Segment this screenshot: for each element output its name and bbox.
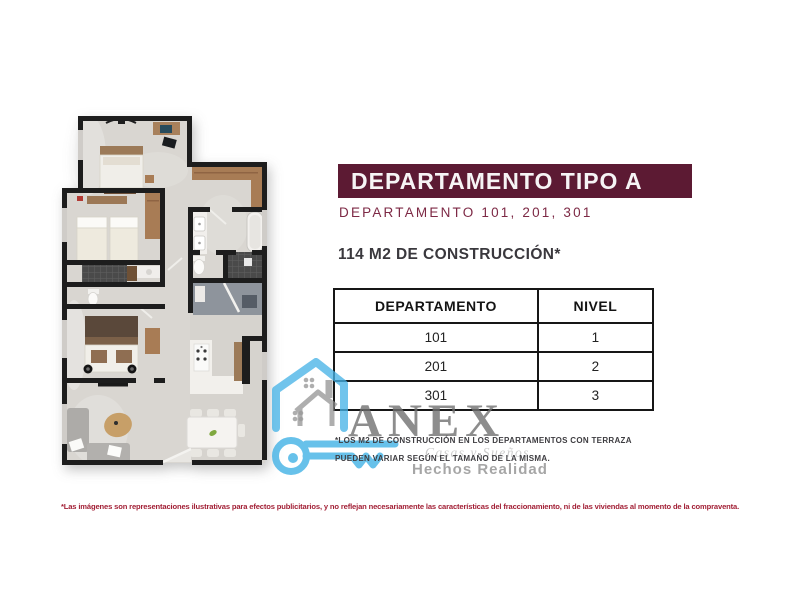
page-title: DEPARTAMENTO TIPO A [351,168,643,194]
cell-departamento: 301 [334,381,538,410]
table-row: 201 2 [334,352,653,381]
table-row: 101 1 [334,323,653,352]
title-banner: DEPARTAMENTO TIPO A [338,164,692,198]
table-header-row: DEPARTAMENTO NIVEL [334,289,653,323]
units-table: DEPARTAMENTO NIVEL 101 1 201 2 301 3 [333,288,654,411]
table-row: 301 3 [334,381,653,410]
footnote-line-2: PUEDEN VARIAR SEGÚN EL TAMAÑO DE LA MISM… [335,450,632,468]
cell-nivel: 2 [538,352,653,381]
cell-departamento: 101 [334,323,538,352]
floor-plan [58,110,273,466]
cell-nivel: 1 [538,323,653,352]
flyer-page: DEPARTAMENTO TIPO A DEPARTAMENTO 101, 20… [0,0,800,600]
entry-area [193,282,263,315]
cell-nivel: 3 [538,381,653,410]
cell-departamento: 201 [334,352,538,381]
header-departamento: DEPARTAMENTO [334,289,538,323]
footnote-line-1: *LOS M2 DE CONSTRUCCIÓN EN LOS DEPARTAME… [335,432,632,450]
header-nivel: NIVEL [538,289,653,323]
subtitle: DEPARTAMENTO 101, 201, 301 [339,205,593,220]
construction-area-text: 114 M2 DE CONSTRUCCIÓN* [338,246,561,264]
terrace-footnote: *LOS M2 DE CONSTRUCCIÓN EN LOS DEPARTAME… [335,432,632,468]
legal-disclaimer: *Las imágenes son representaciones ilust… [0,502,800,511]
